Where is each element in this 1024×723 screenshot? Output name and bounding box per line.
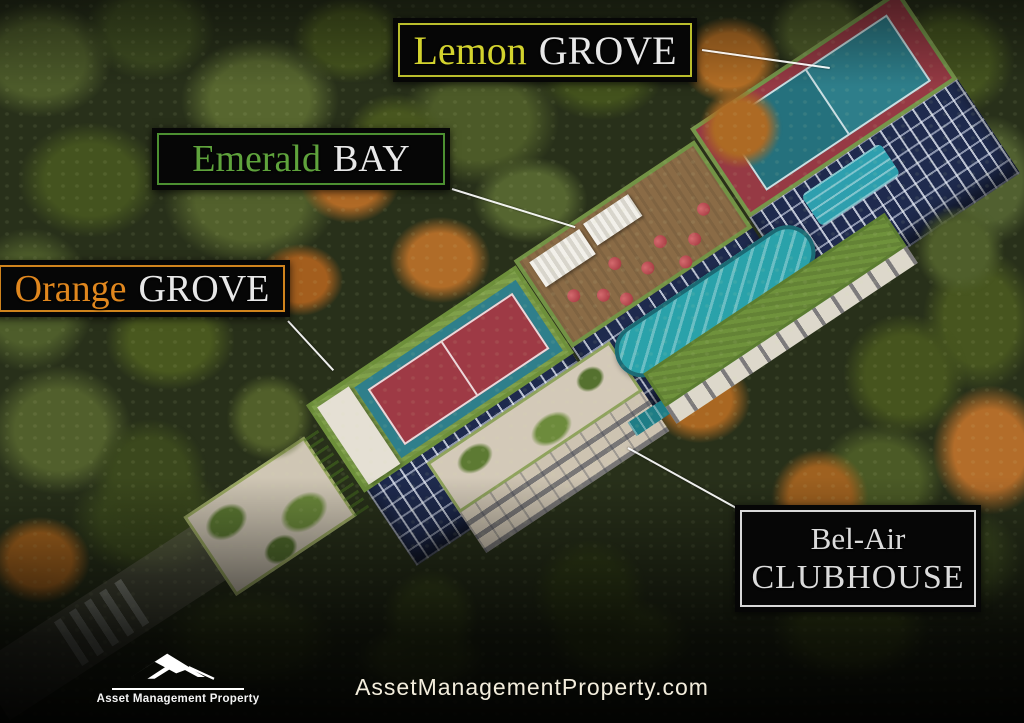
logo-divider: [112, 688, 244, 690]
company-logo: Asset Management Property: [108, 650, 248, 710]
bel-air-label-line2: CLUBHOUSE: [751, 559, 964, 596]
orange-grove-label-accent: Orange: [15, 267, 127, 311]
mountain-logo-icon: [122, 650, 234, 686]
emerald-bay-label-accent: Emerald: [192, 137, 321, 181]
vignette-overlay: [0, 0, 1024, 723]
website-url: AssetManagementProperty.com: [352, 674, 712, 701]
orange-grove-label: Orange GROVE: [0, 260, 290, 317]
aerial-rendering: Lemon GROVE Emerald BAY Orange GROVE Bel…: [0, 0, 1024, 723]
logo-text: Asset Management Property: [97, 693, 260, 705]
lemon-grove-label-rest: GROVE: [539, 27, 677, 74]
bel-air-clubhouse-label: Bel-Air CLUBHOUSE: [735, 505, 981, 612]
orange-grove-label-rest: GROVE: [138, 267, 269, 311]
lemon-grove-label-accent: Lemon: [413, 27, 526, 74]
emerald-bay-label-rest: BAY: [333, 137, 410, 181]
lemon-grove-label: Lemon GROVE: [393, 18, 697, 82]
emerald-bay-label: Emerald BAY: [152, 128, 450, 190]
bel-air-label-line1: Bel-Air: [811, 521, 906, 557]
